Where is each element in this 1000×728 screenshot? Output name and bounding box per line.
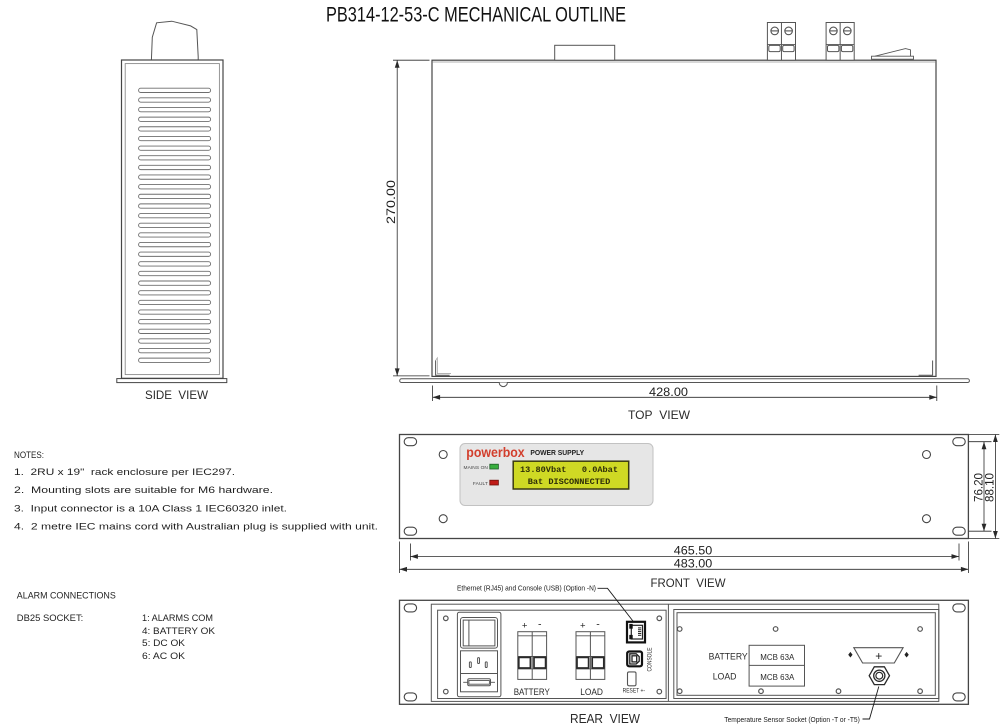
svg-text:465.50: 465.50 <box>674 543 713 557</box>
svg-text:Bat DISCONNECTED: Bat DISCONNECTED <box>528 477 611 487</box>
svg-text:428.00: 428.00 <box>649 385 688 399</box>
svg-text:NOTES:: NOTES: <box>14 450 44 461</box>
svg-text:TOP VIEW: TOP VIEW <box>628 408 690 422</box>
svg-text:LOAD: LOAD <box>580 687 603 697</box>
svg-text:4. 2 metre IEC mains cord wit: 4. 2 metre IEC mains cord with Australia… <box>14 521 378 532</box>
svg-text:POWER SUPPLY: POWER SUPPLY <box>530 448 584 457</box>
svg-text:+: + <box>522 621 528 632</box>
svg-text:4: BATTERY OK: 4: BATTERY OK <box>142 626 216 637</box>
svg-text:5: DC OK: 5: DC OK <box>142 638 186 649</box>
svg-text:+: + <box>580 621 586 632</box>
svg-text:MCB 63A: MCB 63A <box>760 672 794 682</box>
svg-text:powerbox: powerbox <box>466 445 525 460</box>
svg-text:88.10: 88.10 <box>983 473 997 502</box>
svg-text:CONSOLE: CONSOLE <box>646 647 653 671</box>
svg-text:FRONT VIEW: FRONT VIEW <box>651 576 726 590</box>
svg-text:MAINS ON: MAINS ON <box>463 465 488 471</box>
svg-text:PB314-12-53-C MECHANICAL OUTLI: PB314-12-53-C MECHANICAL OUTLINE <box>326 4 626 27</box>
svg-text:3. Input connector is a 10A C: 3. Input connector is a 10A Class 1 IEC6… <box>14 503 287 514</box>
svg-text:483.00: 483.00 <box>674 557 713 571</box>
svg-text:2. Mounting slots are suitabl: 2. Mounting slots are suitable for M6 ha… <box>14 485 273 496</box>
svg-text:BATTERY: BATTERY <box>709 652 748 662</box>
svg-text:ALARM CONNECTIONS: ALARM CONNECTIONS <box>17 591 116 602</box>
svg-text:13.80Vbat 0.0Abat: 13.80Vbat 0.0Abat <box>520 465 618 475</box>
svg-text:RESET +-: RESET +- <box>623 687 646 694</box>
svg-text:LOAD: LOAD <box>713 672 737 682</box>
svg-text:270.00: 270.00 <box>384 180 398 224</box>
svg-text:SIDE VIEW: SIDE VIEW <box>145 388 208 402</box>
svg-text:Temperature Sensor Socket (Opt: Temperature Sensor Socket (Option -T or … <box>724 715 860 724</box>
svg-text:-: - <box>596 619 600 631</box>
svg-text:-: - <box>538 619 542 631</box>
svg-text:FAULT: FAULT <box>473 481 488 487</box>
svg-text:BATTERY: BATTERY <box>514 687 550 697</box>
svg-text:REAR VIEW: REAR VIEW <box>570 712 640 726</box>
svg-text:6: AC OK: 6: AC OK <box>142 651 186 662</box>
svg-text:1: ALARMS COM: 1: ALARMS COM <box>142 613 213 624</box>
svg-text:MCB 63A: MCB 63A <box>760 652 794 662</box>
svg-text:DB25 SOCKET:: DB25 SOCKET: <box>17 613 84 624</box>
svg-text:1. 2RU x 19" rack enclosure: 1. 2RU x 19" rack enclosure per IEC297. <box>14 467 235 478</box>
svg-text:Ethernet (RJ45) and Console (U: Ethernet (RJ45) and Console (USB) (Optio… <box>457 583 596 592</box>
svg-text:+: + <box>875 649 882 663</box>
